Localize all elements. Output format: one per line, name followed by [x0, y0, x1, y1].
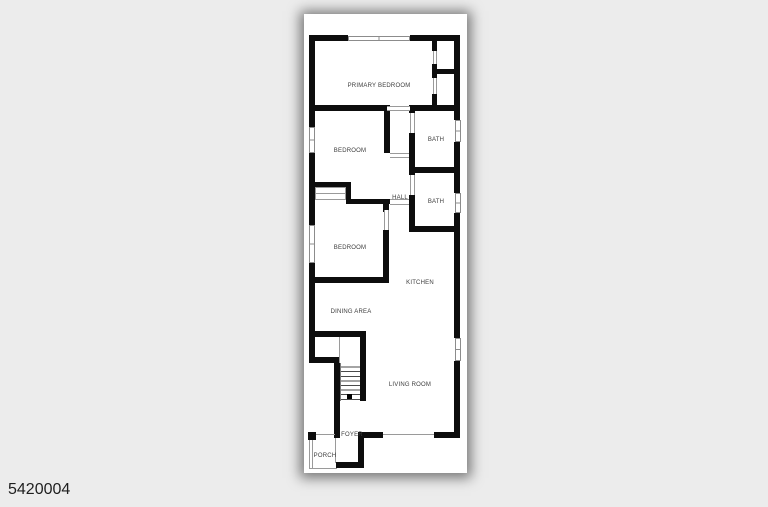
- wall-segment: [309, 337, 315, 359]
- thin-line: [315, 434, 335, 435]
- room-label-porch: PORCH: [314, 453, 337, 459]
- wall-segment: [384, 105, 390, 153]
- room-label-bedroom-1: BEDROOM: [334, 148, 366, 154]
- thin-line: [309, 468, 337, 469]
- room-label-kitchen: KITCHEN: [406, 280, 434, 286]
- window: [455, 338, 461, 361]
- door-opening: [410, 175, 415, 195]
- wall-segment: [309, 35, 315, 127]
- wall-segment: [309, 105, 387, 111]
- photo-id-label: 5420004: [8, 481, 70, 499]
- room-label-living-room: LIVING ROOM: [389, 382, 431, 388]
- wall-segment: [432, 41, 437, 51]
- wall-segment: [309, 263, 315, 337]
- closet: [315, 187, 346, 200]
- wall-segment: [410, 105, 460, 111]
- window: [455, 120, 461, 142]
- door-opening: [433, 51, 438, 64]
- wall-segment: [454, 361, 460, 437]
- thin-line: [335, 438, 336, 463]
- thin-line: [339, 337, 340, 363]
- door-opening: [390, 153, 409, 159]
- wall-segment: [309, 277, 389, 283]
- door-opening: [433, 78, 438, 94]
- stair-marker: [347, 394, 352, 399]
- floor-plan-photo: 5420004 PRIMARY BEDROOMBEDROOMBATHHALLBA…: [0, 0, 768, 507]
- wall-segment: [409, 167, 460, 173]
- room-label-dining-area: DINING AREA: [331, 309, 372, 315]
- room-label-hall: HALL: [392, 195, 408, 201]
- wall-segment: [309, 331, 366, 337]
- door-opening: [410, 113, 415, 133]
- window: [309, 127, 315, 153]
- room-label-bedroom-2: BEDROOM: [334, 245, 366, 251]
- room-label-bath-1: BATH: [428, 137, 444, 143]
- door-opening: [387, 106, 410, 111]
- wall-segment: [434, 432, 460, 438]
- wall-segment: [432, 94, 437, 105]
- door-opening: [309, 439, 313, 468]
- wall-segment: [336, 462, 364, 468]
- window: [348, 36, 410, 41]
- wall-segment: [360, 331, 366, 401]
- door-opening: [384, 210, 389, 230]
- porch-post: [308, 432, 316, 440]
- thin-line: [383, 434, 434, 435]
- window: [455, 193, 461, 213]
- room-label-bath-2: BATH: [428, 199, 444, 205]
- room-label-primary-bedroom: PRIMARY BEDROOM: [348, 83, 411, 89]
- window: [309, 225, 315, 263]
- room-label-foyer: FOYER: [341, 432, 363, 438]
- wall-segment: [409, 226, 460, 232]
- wall-segment: [437, 69, 454, 74]
- wall-segment: [383, 230, 389, 282]
